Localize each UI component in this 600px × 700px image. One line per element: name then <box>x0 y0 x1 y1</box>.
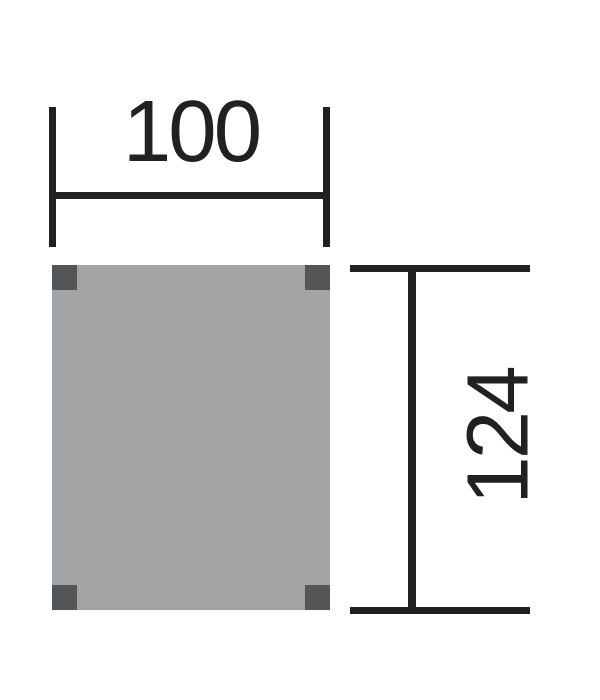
corner-post-top-left <box>52 265 77 290</box>
corner-post-bottom-left <box>52 585 77 610</box>
dimension-diagram: 100 124 <box>0 0 600 700</box>
width-dim-line <box>52 192 330 199</box>
width-dim-label: 100 <box>52 88 330 175</box>
corner-post-top-right <box>305 265 330 290</box>
height-dim-line <box>408 265 416 614</box>
floor-plan-rectangle <box>52 265 330 610</box>
height-dim-top-extension-line <box>350 265 530 272</box>
height-dim-label: 124 <box>455 337 542 537</box>
height-dim-bottom-extension-line <box>350 607 530 614</box>
corner-post-bottom-right <box>305 585 330 610</box>
